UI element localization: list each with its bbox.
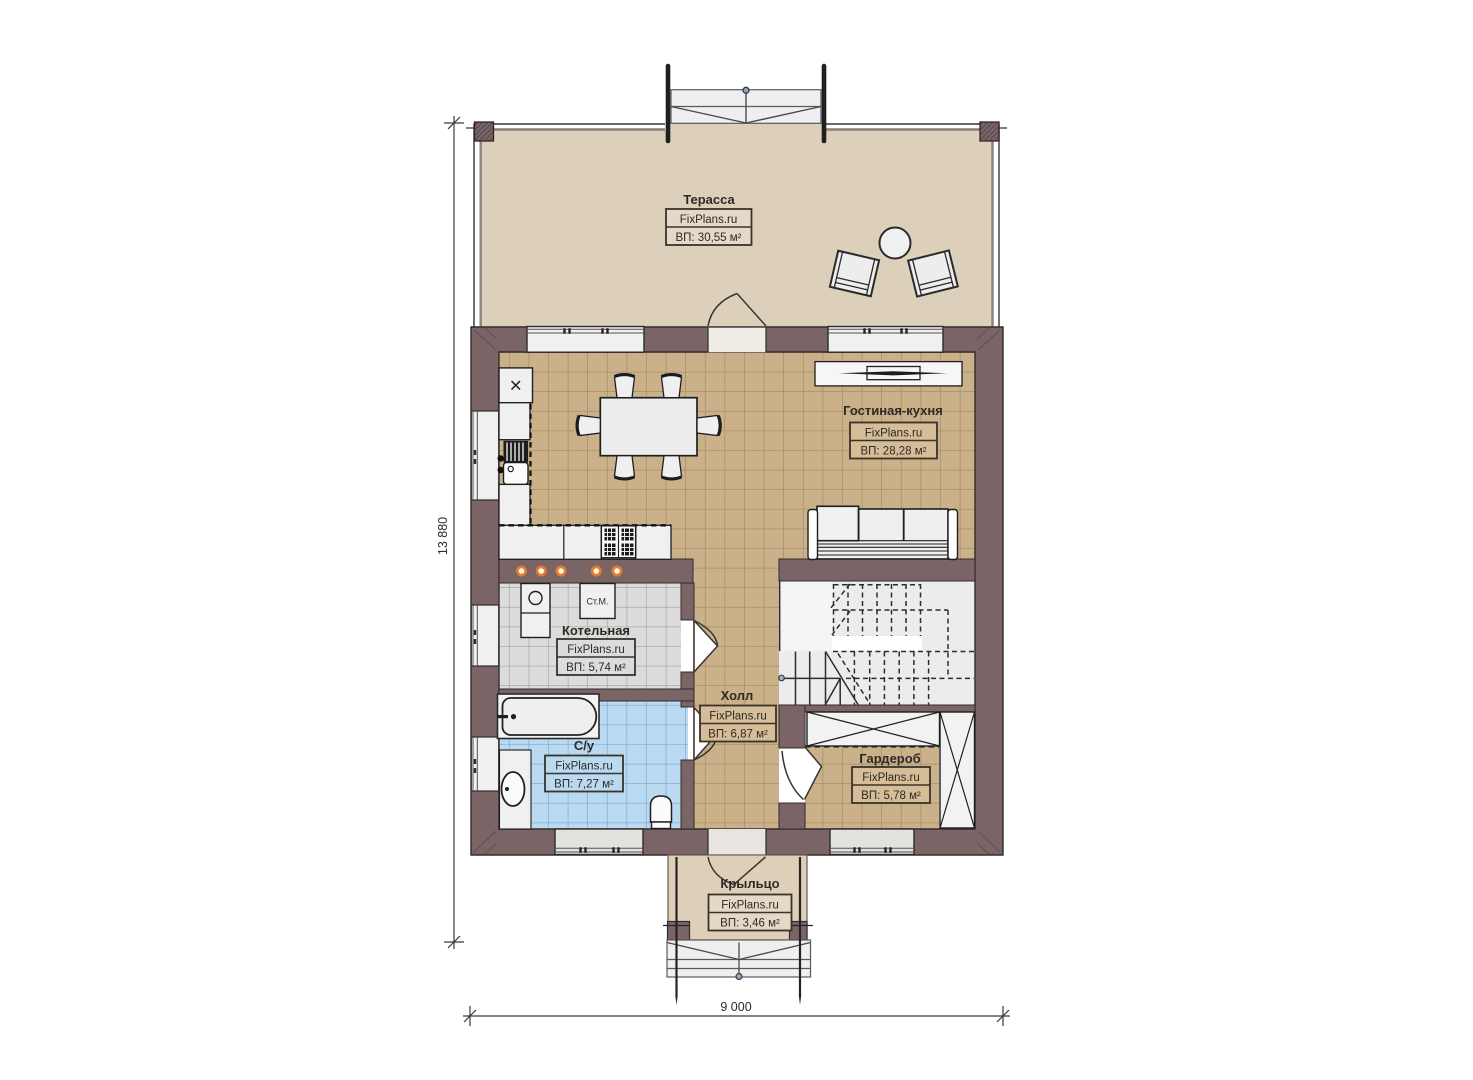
svg-text:Терасса: Терасса: [683, 192, 735, 207]
svg-text:ВП: 5,78 м²: ВП: 5,78 м²: [861, 790, 921, 802]
svg-text:С/у: С/у: [574, 738, 595, 753]
svg-text:Гостиная-кухня: Гостиная-кухня: [843, 403, 943, 418]
svg-text:Ст.М.: Ст.М.: [586, 597, 608, 607]
svg-text:Крыльцо: Крыльцо: [720, 876, 779, 891]
svg-text:13 880: 13 880: [436, 517, 450, 555]
svg-text:FixPlans.ru: FixPlans.ru: [555, 761, 613, 773]
svg-text:9 000: 9 000: [720, 1000, 751, 1014]
svg-text:Холл: Холл: [721, 688, 754, 703]
svg-text:FixPlans.ru: FixPlans.ru: [680, 214, 738, 226]
svg-text:ВП: 30,55 м²: ВП: 30,55 м²: [675, 232, 741, 244]
svg-text:FixPlans.ru: FixPlans.ru: [567, 644, 625, 656]
svg-text:ВП: 6,87 м²: ВП: 6,87 м²: [708, 729, 768, 741]
svg-text:Котельная: Котельная: [562, 623, 630, 638]
svg-text:FixPlans.ru: FixPlans.ru: [721, 900, 779, 912]
svg-text:ВП: 7,27 м²: ВП: 7,27 м²: [554, 779, 614, 791]
svg-text:FixPlans.ru: FixPlans.ru: [709, 711, 767, 723]
svg-text:FixPlans.ru: FixPlans.ru: [865, 428, 923, 440]
svg-text:ВП: 3,46 м²: ВП: 3,46 м²: [720, 918, 780, 930]
svg-text:FixPlans.ru: FixPlans.ru: [862, 772, 920, 784]
svg-text:Гардероб: Гардероб: [859, 751, 920, 766]
svg-text:ВП: 28,28 м²: ВП: 28,28 м²: [860, 446, 926, 458]
svg-text:ВП: 5,74 м²: ВП: 5,74 м²: [566, 662, 626, 674]
